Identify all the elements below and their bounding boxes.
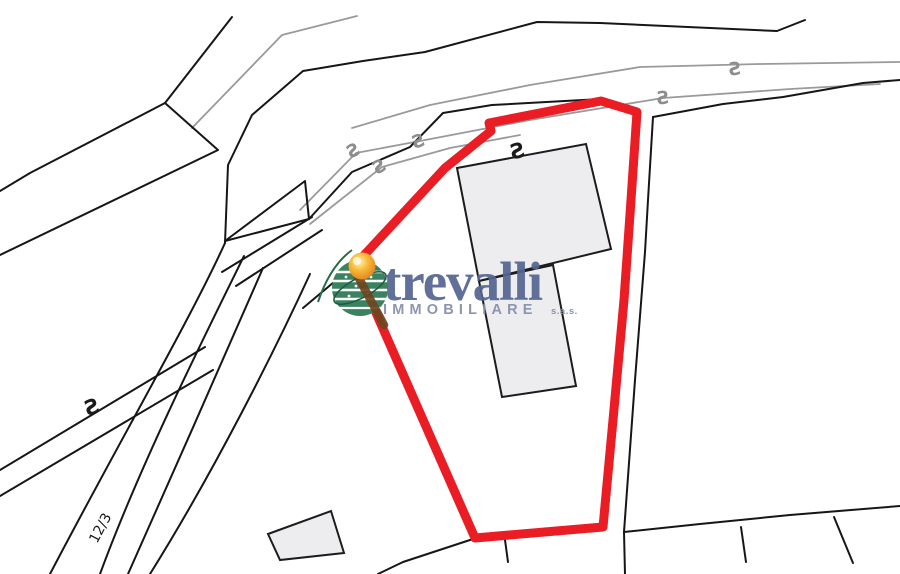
s-marker-icon: S	[408, 130, 427, 154]
building-footprint-small	[268, 511, 344, 560]
boundary-line	[624, 506, 900, 532]
boundary-line	[0, 370, 213, 496]
map-canvas: S S S S S S S 12/3	[0, 0, 900, 574]
boundary-tick	[741, 527, 746, 562]
s-marker-icon: S	[655, 87, 670, 109]
s-marker-icon: S	[342, 139, 364, 164]
boundary-line	[0, 103, 218, 255]
cadastral-map: S S S S S S S 12/3	[0, 0, 900, 574]
s-marker-icon: S	[80, 394, 102, 422]
boundary-line	[0, 17, 232, 191]
road-edge	[100, 256, 244, 574]
sliver-parcel	[225, 181, 309, 241]
brand-subtitle-text: IMMOBILIARE	[383, 302, 538, 318]
boundary-line	[378, 539, 473, 574]
sun-icon	[349, 253, 376, 280]
boundary-tick	[505, 540, 508, 562]
survey-markers: S S S S S S S	[80, 58, 742, 421]
road-edge	[50, 243, 225, 574]
parcel-number-label: 12/3	[86, 511, 115, 546]
road-edge	[128, 268, 263, 574]
survey-line	[352, 62, 900, 128]
survey-line	[192, 16, 357, 128]
boundary-tick	[834, 517, 853, 563]
s-marker-icon: S	[727, 58, 742, 80]
brand-legal-suffix: s.a.s.	[551, 306, 578, 317]
boundary-line	[0, 347, 205, 470]
